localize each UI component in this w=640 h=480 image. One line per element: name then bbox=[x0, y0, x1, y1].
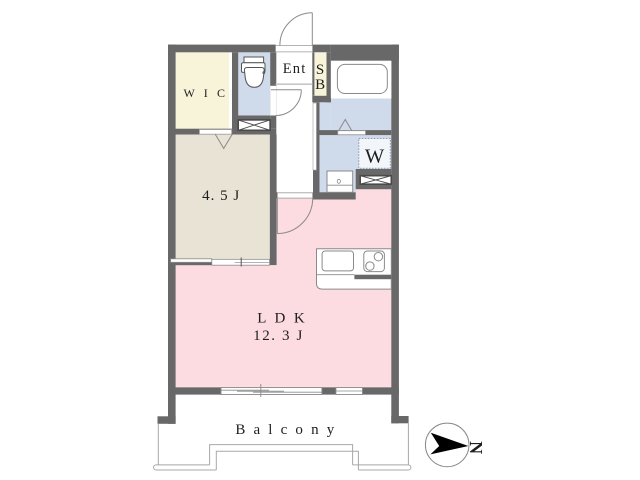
svg-text:12. 3 J: 12. 3 J bbox=[253, 328, 304, 344]
svg-text:4. 5 J: 4. 5 J bbox=[202, 188, 240, 204]
svg-text:B a l c o n y: B a l c o n y bbox=[235, 422, 336, 438]
svg-text:B: B bbox=[315, 77, 325, 93]
svg-text:W: W bbox=[365, 146, 385, 168]
svg-text:L D K: L D K bbox=[257, 310, 307, 326]
svg-text:N: N bbox=[466, 441, 486, 454]
svg-text:W I C: W I C bbox=[183, 86, 228, 100]
svg-text:S: S bbox=[316, 62, 324, 78]
svg-text:Ent: Ent bbox=[283, 61, 307, 77]
